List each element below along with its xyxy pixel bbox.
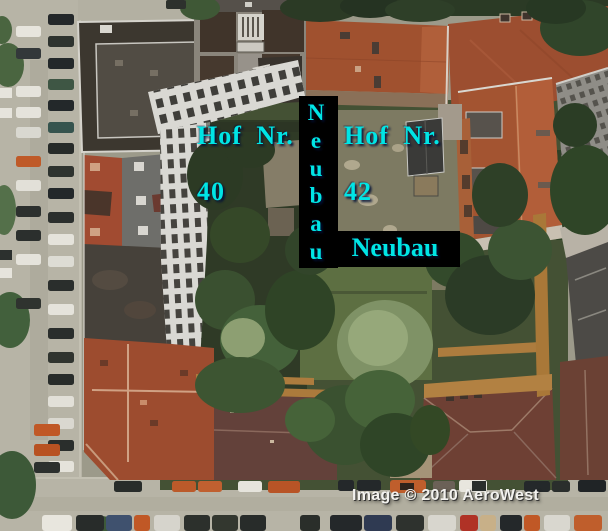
neubau-letter: u [310, 157, 323, 180]
neubau-letter: a [310, 212, 322, 235]
neubau-letter: u [310, 240, 323, 263]
hof-40-line1: Hof Nr. [197, 121, 294, 150]
hof-40-label: Hof Nr. 40 [197, 122, 294, 206]
hof-42-line2: 42 [344, 177, 372, 206]
hof-40-line2: 40 [197, 177, 225, 206]
hof-42-line1: Hof Nr. [344, 121, 441, 150]
neubau-horizontal-label: Neubau [352, 233, 439, 263]
copyright-watermark: Image © 2010 AeroWest [352, 487, 539, 505]
parked-cars-left-east [48, 14, 74, 472]
neubau-horizontal-band: Neubau [330, 231, 460, 267]
neubau-letter: N [308, 101, 325, 124]
neubau-letter: b [310, 184, 323, 207]
neubau-letter: e [311, 129, 321, 152]
annotated-aerial-view: { "annotations": { "hof_40": {"line1": "… [0, 0, 608, 531]
hof-42-label: Hof Nr. 42 [344, 122, 441, 206]
